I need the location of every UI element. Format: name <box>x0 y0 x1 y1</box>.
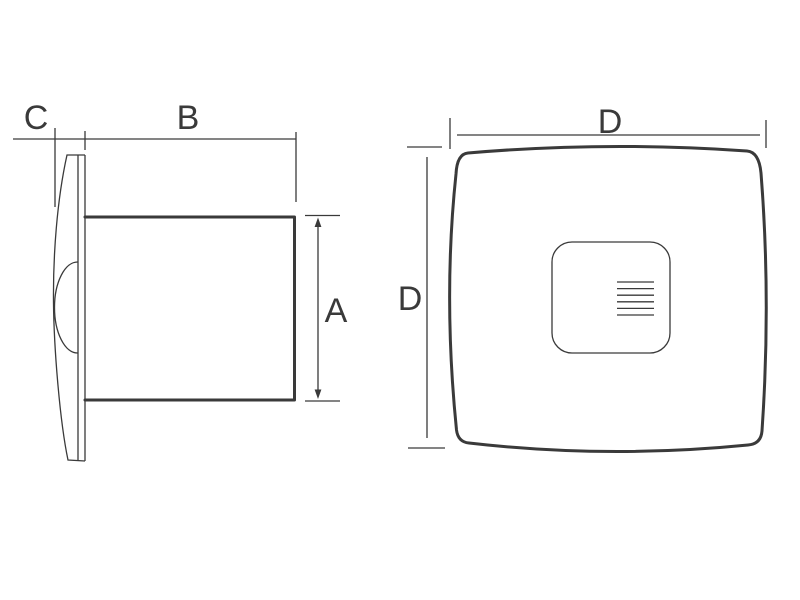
dimension-label-a: A <box>325 292 348 330</box>
arrowhead-a-up <box>315 218 322 228</box>
drawing-canvas: C B A <box>0 0 800 600</box>
duct-body-outline <box>85 217 295 400</box>
dimension-label-b: B <box>177 99 200 137</box>
dimension-label-c: C <box>24 99 49 137</box>
fan-front-view <box>450 146 767 451</box>
faceplate-outline <box>450 146 767 451</box>
cover-back-plate <box>78 155 85 461</box>
dimension-d-top: D <box>450 103 766 149</box>
dimension-d-left: D <box>398 147 445 448</box>
dimension-label-d-left: D <box>398 280 423 318</box>
front-cover-profile <box>53 155 85 461</box>
dimension-c-b: C B <box>13 99 296 207</box>
dimension-a: A <box>305 216 348 402</box>
dimension-label-d-top: D <box>598 103 623 141</box>
fan-dimension-drawing: C B A <box>0 0 800 600</box>
arrowhead-a-down <box>315 390 322 400</box>
fan-side-view <box>53 155 294 461</box>
cover-section-arc <box>55 262 78 353</box>
